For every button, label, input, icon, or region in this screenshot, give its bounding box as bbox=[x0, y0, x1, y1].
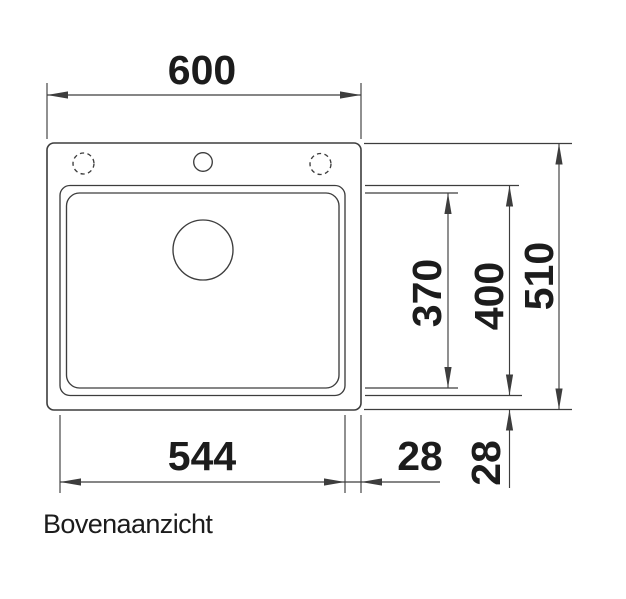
dim-bowl-width-label: 544 bbox=[168, 433, 237, 479]
arrow-gap-left-icon bbox=[361, 478, 382, 485]
tap-hole-left-optional bbox=[73, 153, 94, 174]
bowl-outer-contour bbox=[60, 186, 345, 396]
arrow-down-icon bbox=[506, 375, 513, 396]
sink-outline bbox=[47, 143, 361, 410]
arrow-up-icon bbox=[555, 144, 562, 165]
arrow-right-icon bbox=[340, 91, 361, 98]
arrow-left-icon bbox=[60, 478, 81, 485]
arrow-up-icon bbox=[444, 193, 451, 214]
dim-total-depth-label: 510 bbox=[516, 242, 562, 310]
sink-top-view-drawing: 600 510 400 370 bbox=[0, 0, 626, 599]
bowl-inner-contour bbox=[67, 193, 340, 388]
arrow-up-icon bbox=[506, 410, 513, 431]
dim-gap-right-label: 28 bbox=[397, 433, 443, 479]
drawing-caption: Bovenaanzicht bbox=[43, 509, 213, 539]
dim-bowl-width: 544 28 bbox=[60, 415, 443, 493]
sink-dimension-drawing-page: 600 510 400 370 bbox=[0, 0, 626, 599]
dim-bowl-depth-inner: 370 bbox=[365, 193, 458, 388]
dim-total-width-label: 600 bbox=[168, 47, 236, 93]
arrow-right-icon bbox=[324, 478, 345, 485]
dim-total-width: 600 bbox=[47, 47, 361, 139]
arrow-left-icon bbox=[47, 91, 68, 98]
dim-gap-bottom: 28 bbox=[463, 410, 513, 489]
dim-gap-bottom-label: 28 bbox=[463, 440, 509, 486]
sink-body bbox=[47, 143, 361, 410]
dim-bowl-depth-outer-label: 400 bbox=[466, 262, 512, 330]
arrow-up-icon bbox=[506, 186, 513, 207]
tap-hole-right-optional bbox=[310, 154, 331, 175]
tap-hole-center bbox=[194, 153, 213, 172]
dim-bowl-depth-inner-label: 370 bbox=[404, 259, 450, 327]
arrow-down-icon bbox=[555, 389, 562, 410]
arrow-down-icon bbox=[444, 367, 451, 388]
drain-hole bbox=[173, 220, 233, 280]
